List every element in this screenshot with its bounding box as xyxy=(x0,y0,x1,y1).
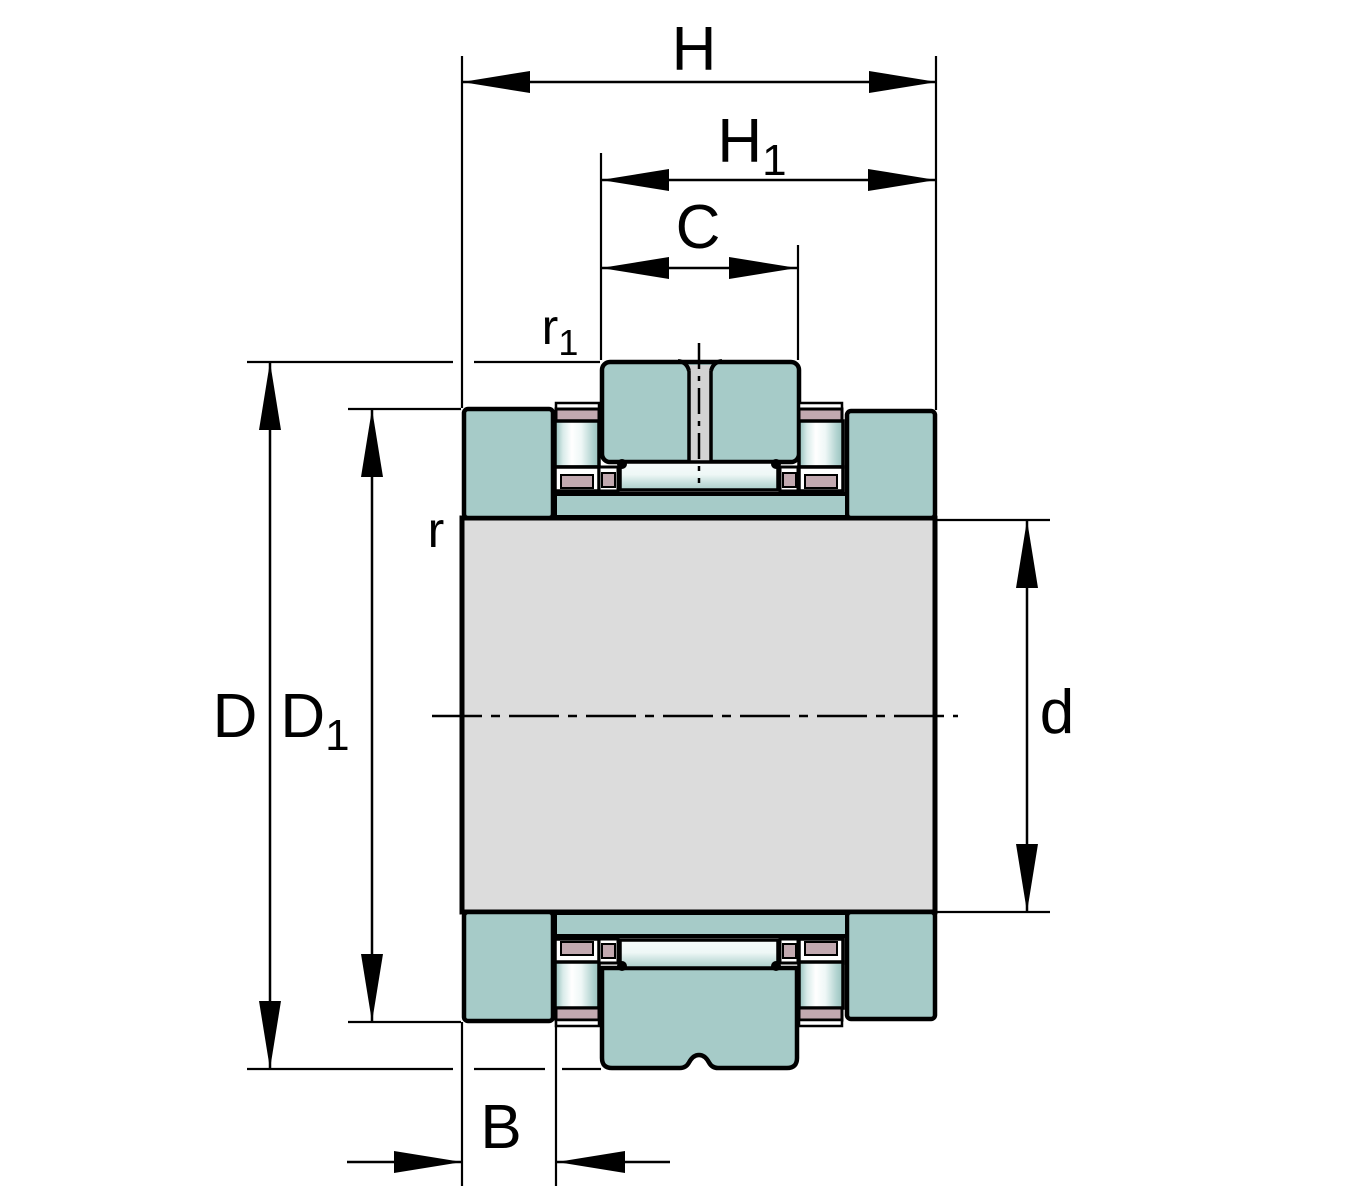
shaft-washer-bottom xyxy=(602,968,797,1068)
cage-rim-bottom-left xyxy=(556,1020,599,1026)
arrow-C-right xyxy=(729,257,797,279)
arrow-d-bottom xyxy=(1016,844,1038,912)
cage-bar-top-right xyxy=(805,475,837,488)
label-r: r xyxy=(428,502,445,558)
label-D: D xyxy=(213,682,258,751)
axial-roller-bottom-left xyxy=(555,962,599,1008)
cage-bottom-right xyxy=(799,1008,842,1020)
needle-end-dot-bottom-right xyxy=(771,961,781,971)
cage-rib-bar-top-left xyxy=(602,473,615,487)
axial-roller-top-right xyxy=(799,421,843,467)
cage-bottom-left xyxy=(556,1008,599,1020)
axial-roller-bottom-right xyxy=(799,962,843,1008)
needle-end-dot-top-right xyxy=(771,459,781,469)
label-d: d xyxy=(1040,678,1074,747)
arrow-B-left xyxy=(394,1151,462,1173)
housing-washer-bottom-plate xyxy=(555,913,847,936)
cage-top-left xyxy=(556,409,599,421)
label-H: H xyxy=(672,15,717,84)
needle-roller-bottom xyxy=(620,940,778,968)
arrow-D-top xyxy=(259,362,281,430)
arrow-H-left xyxy=(462,71,530,93)
cage-bar-bottom-right xyxy=(805,942,837,955)
arrow-B-right xyxy=(557,1151,625,1173)
axial-roller-top-left xyxy=(555,421,599,467)
outer-ring-top-right xyxy=(847,411,935,518)
arrow-d-top xyxy=(1016,520,1038,588)
label-r1: r1 xyxy=(542,299,579,363)
arrow-H1-left xyxy=(601,169,669,191)
needle-end-dot-bottom-left xyxy=(617,961,627,971)
needle-end-dot-top-left xyxy=(617,459,627,469)
label-C: C xyxy=(676,193,721,262)
cage-rib-bar-bottom-right xyxy=(783,944,796,958)
arrow-D1-top xyxy=(361,409,383,477)
label-H1: H1 xyxy=(717,107,786,185)
cage-top-right xyxy=(799,409,842,421)
label-B: B xyxy=(480,1093,521,1162)
housing-washer-top-plate xyxy=(555,494,847,517)
cage-rib-bar-top-right xyxy=(783,473,796,487)
cage-rib-bar-bottom-left xyxy=(602,944,615,958)
cage-bar-top-left xyxy=(561,475,593,488)
label-D1: D1 xyxy=(280,682,349,760)
cage-bar-bottom-left xyxy=(561,942,593,955)
arrow-D1-bottom xyxy=(361,954,383,1022)
arrow-H-right xyxy=(869,71,937,93)
arrow-C-left xyxy=(601,257,669,279)
outer-ring-top-left xyxy=(464,409,553,518)
outer-ring-bottom-right xyxy=(847,912,935,1019)
arrow-H1-right xyxy=(868,169,936,191)
cage-rim-bottom-right xyxy=(799,1020,842,1026)
drawing-svg: H H1 C r1 r D D1 d B xyxy=(0,0,1350,1200)
bearing-dimension-drawing: H H1 C r1 r D D1 d B xyxy=(0,0,1350,1200)
outer-ring-bottom-left xyxy=(464,912,553,1021)
arrow-D-bottom xyxy=(259,1001,281,1069)
